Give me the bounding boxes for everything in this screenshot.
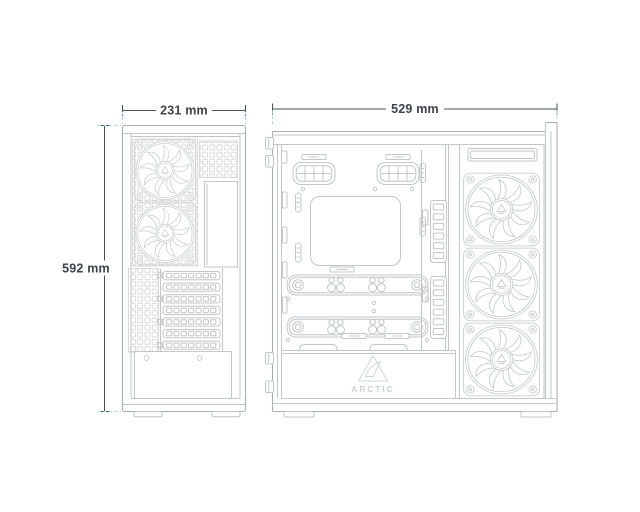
side-width-dimension: 529 mm: [273, 102, 558, 127]
side-case-feet: [284, 412, 551, 418]
pc-case-technical-drawing: 231 mm 592 mm: [0, 0, 640, 512]
rear-view: 231 mm 592 mm: [61, 104, 246, 417]
cable-tie-slot: [296, 193, 302, 212]
pci-slot: [163, 330, 220, 338]
tray-cutout-tab: [370, 345, 407, 351]
front-fan-2: [464, 248, 540, 321]
front-fan-column: [460, 145, 545, 399]
cable-tie-slot: [296, 243, 302, 262]
rear-width-label: 231 mm: [160, 104, 208, 118]
psu-cutout: [135, 352, 232, 399]
arctic-logo: ARCTIC: [351, 356, 394, 395]
rear-width-dimension: 231 mm: [123, 104, 246, 125]
motherboard-tray: [283, 155, 429, 351]
side-rear-tabs: [266, 138, 288, 393]
arctic-logo-text: ARCTIC: [351, 384, 394, 394]
pci-slot: [163, 295, 220, 303]
pci-slot: [163, 283, 220, 291]
pci-slot: [163, 272, 220, 280]
front-fan-1: [464, 173, 540, 246]
grommet-bracket: [386, 155, 410, 160]
cable-ladder-bottom: [431, 277, 447, 339]
cable-grommet-left: [293, 163, 335, 185]
cable-bracket: [342, 334, 366, 339]
case-diagram: 231 mm 592 mm: [0, 0, 640, 512]
psu-shroud: ARCTIC: [282, 351, 456, 399]
front-top-vent: [468, 149, 537, 162]
tray-cutout-tab: [300, 345, 337, 351]
rear-height-label: 592 mm: [62, 262, 110, 276]
rear-io-cutout: [205, 182, 238, 268]
cable-management-bar-top: [287, 275, 428, 295]
rear-top-mesh-panel: [200, 141, 238, 178]
cable-tie-slot: [420, 164, 426, 183]
rear-height-dimension: 592 mm: [61, 126, 121, 412]
pci-slot: [163, 318, 220, 326]
cable-ladder-top: [431, 201, 447, 263]
pci-slot: [163, 306, 220, 314]
cable-bracket: [330, 267, 354, 272]
rear-case-feet: [134, 412, 240, 417]
cable-grommet-right: [377, 163, 419, 185]
side-view: 529 mm: [266, 102, 558, 417]
pci-slot: [163, 341, 220, 349]
cpu-cooler-cutout: [311, 197, 401, 266]
side-width-label: 529 mm: [391, 102, 439, 116]
grommet-bracket: [302, 155, 326, 160]
front-fan-3: [464, 323, 540, 396]
rear-slot-mesh-panel: [129, 269, 159, 352]
cable-bracket: [385, 334, 409, 339]
